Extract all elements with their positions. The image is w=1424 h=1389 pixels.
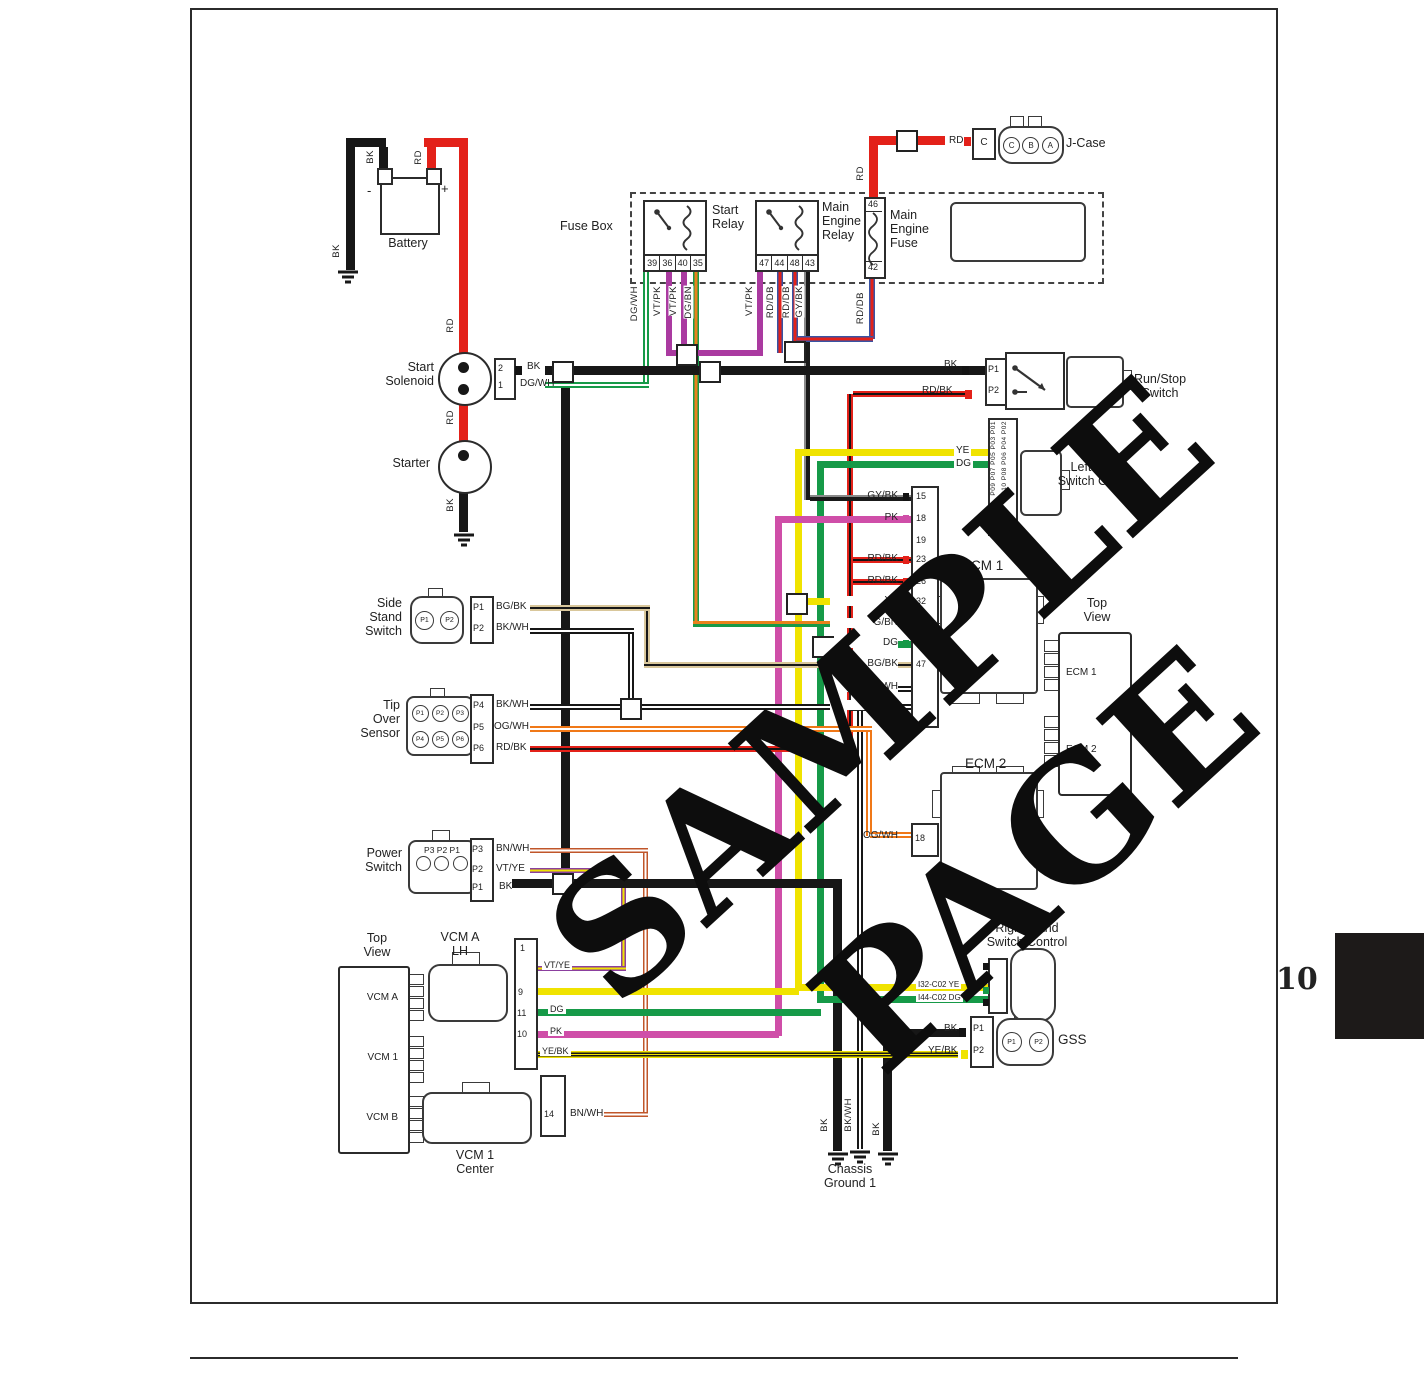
vcm-top-view-1: VCM 1 bbox=[346, 1053, 398, 1063]
tip-over-c3: P3 bbox=[452, 705, 469, 722]
starter-bk-label: BK bbox=[446, 498, 456, 512]
fuse-box-connector bbox=[950, 202, 1086, 262]
vcm-tab bbox=[408, 998, 424, 1009]
solenoid-rd-label: RD bbox=[446, 410, 456, 425]
battery-rd-mid-label: RD bbox=[446, 318, 456, 333]
fuse-divider bbox=[864, 211, 882, 212]
vtpk3-vlabel: VT/PK bbox=[745, 286, 755, 316]
wire-ogwh-p5 bbox=[530, 726, 872, 732]
vcm-tab bbox=[408, 1036, 424, 1047]
wire-starter-bk bbox=[459, 490, 468, 532]
battery-pos-terminal bbox=[426, 168, 442, 185]
vtpk1-vlabel: VT/PK bbox=[653, 286, 663, 316]
switch-icon bbox=[1007, 354, 1059, 404]
start-solenoid-body bbox=[438, 352, 492, 406]
main-engine-relay-body bbox=[755, 200, 819, 258]
vcm-a-connector bbox=[428, 964, 508, 1022]
wire-bnwh-vcm14 bbox=[604, 1112, 648, 1117]
wire-battery-bk bbox=[346, 138, 386, 147]
pin-bullet bbox=[965, 390, 972, 399]
wire-main-bk-bus bbox=[545, 366, 985, 375]
side-stand-c1: P1 bbox=[415, 611, 434, 630]
vcm1-pinbox bbox=[540, 1075, 566, 1137]
solenoid-pin1-wire: DG/WH bbox=[520, 379, 554, 389]
wire-bgbk-vertical bbox=[644, 605, 650, 665]
ground-icon bbox=[452, 533, 476, 549]
side-stand-label: SideStandSwitch bbox=[340, 596, 402, 638]
dgwh-vlabel: DG/WH bbox=[630, 286, 640, 321]
wire-solenoid-starter-rd bbox=[459, 402, 468, 442]
side-stand-connector: P1 P2 bbox=[410, 596, 464, 644]
ecm1-pin23: 23 bbox=[916, 555, 926, 564]
pin-bullet bbox=[983, 987, 989, 994]
side-stand-p1-wire: BG/BK bbox=[496, 602, 527, 612]
runstop-connector bbox=[1066, 356, 1124, 408]
wire-bnwh-vertical bbox=[643, 848, 648, 1116]
power-switch-p3: P3 bbox=[472, 845, 483, 854]
vcm-tab bbox=[408, 1010, 424, 1021]
power-switch-circle bbox=[434, 856, 449, 871]
junction bbox=[552, 361, 574, 383]
vcm1-bnwh-label: BN/WH bbox=[570, 1109, 603, 1119]
ground-icon bbox=[336, 270, 360, 286]
gss-label: GSS bbox=[1058, 1032, 1087, 1047]
runstop-p2: P2 bbox=[988, 386, 999, 395]
lh-pins-col2: P10 P08 P06 P04 P02 bbox=[1002, 421, 1009, 496]
wire-vtye-p2 bbox=[530, 868, 626, 873]
tip-over-p5: P5 bbox=[473, 723, 484, 732]
battery-rd-label: RD bbox=[414, 150, 424, 165]
junction bbox=[784, 341, 806, 363]
ecm2-pin18: 18 bbox=[915, 834, 925, 843]
wire-battery-rd bbox=[424, 138, 468, 147]
ecm1-pin47: 47 bbox=[916, 660, 926, 669]
wire-rddb-fuse bbox=[869, 277, 875, 339]
wire-main-bk-bus-vertical bbox=[561, 372, 570, 880]
pin-bullet bbox=[903, 556, 909, 564]
tip-over-p6-wire: RD/BK bbox=[496, 743, 527, 753]
jcase-rd-label: RD bbox=[949, 136, 963, 146]
junction bbox=[552, 873, 574, 895]
battery-label: Battery bbox=[378, 236, 438, 250]
pin-bullet bbox=[964, 137, 971, 146]
chapter-tab bbox=[1335, 933, 1424, 1039]
dgbn-vlabel: DG/BN bbox=[684, 286, 694, 319]
ecm1-pin26-wire: RD/BK bbox=[830, 576, 898, 586]
vcm-top-view-a: VCM A bbox=[346, 993, 398, 1003]
ecm1-connector bbox=[940, 578, 1038, 694]
start-relay-pins: 39364035 bbox=[643, 254, 707, 272]
pin-bullet bbox=[962, 366, 969, 375]
battery-neg-terminal bbox=[377, 168, 393, 185]
side-stand-p1: P1 bbox=[473, 603, 484, 612]
starter-body bbox=[438, 440, 492, 494]
lh-dg-label: DG bbox=[954, 459, 973, 469]
pin-bullet bbox=[983, 963, 989, 970]
ecm2-connector bbox=[940, 772, 1038, 890]
vcm-a-pin10: 10 bbox=[517, 1030, 527, 1039]
power-switch-p1: P1 bbox=[472, 883, 483, 892]
wire-rdbk-p6 bbox=[530, 746, 853, 752]
lh-pins-col1: P09 P07 P05 P03 P01 bbox=[991, 421, 998, 496]
fuse-pin-top: 46 bbox=[865, 200, 881, 209]
wire-bgbk-row1 bbox=[530, 605, 650, 611]
vcm-tab bbox=[408, 1060, 424, 1071]
junction bbox=[620, 698, 642, 720]
power-switch-p2: P2 bbox=[472, 865, 483, 874]
ecm1-pin18: 18 bbox=[916, 514, 926, 523]
gybk-vlabel: GY/BK bbox=[795, 286, 805, 318]
tip-over-c2: P2 bbox=[432, 705, 449, 722]
gss-bk-label: BK bbox=[944, 1024, 957, 1034]
ecm-top-view-body bbox=[1058, 632, 1132, 796]
lh-ye-label: YE bbox=[954, 446, 971, 456]
wire-ogwh-vertical bbox=[866, 730, 872, 836]
pin-bullet bbox=[903, 578, 909, 586]
vcm-a-yebk-label: YE/BK bbox=[540, 1047, 571, 1056]
ecm-top-view-label: TopView bbox=[1072, 596, 1122, 624]
tip-over-p4: P4 bbox=[473, 701, 484, 710]
power-switch-p2-wire: VT/YE bbox=[496, 864, 525, 874]
vcm-a-pk-label: PK bbox=[548, 1027, 564, 1036]
tip-over-c4: P4 bbox=[412, 731, 429, 748]
ecm1-dg-wire: DG bbox=[830, 638, 898, 648]
ecm1-gbn-wire: G/BN bbox=[830, 618, 898, 628]
jcase-pin-a: A bbox=[1042, 137, 1059, 154]
battery-minus: - bbox=[367, 184, 371, 197]
ecm1-pin18-wire: PK bbox=[830, 513, 898, 523]
power-switch-circle bbox=[453, 856, 468, 871]
tip-over-c5: P5 bbox=[432, 731, 449, 748]
jcase-label: J-Case bbox=[1066, 136, 1106, 150]
ecm-top-view-ecm2: ECM 2 bbox=[1066, 745, 1097, 755]
power-switch-p3-wire: BN/WH bbox=[496, 844, 529, 854]
jcase-rd-vlabel: RD bbox=[856, 166, 866, 181]
wire-bkwh-ground bbox=[857, 708, 863, 1149]
rddb1-vlabel: RD/DB bbox=[766, 286, 776, 318]
battery-bk-side-label: BK bbox=[332, 244, 342, 258]
wire-battery-bk-down bbox=[346, 138, 355, 270]
solenoid-pin2: 2 bbox=[498, 364, 503, 373]
main-engine-fuse-label: MainEngineFuse bbox=[890, 208, 929, 250]
wire-bnwh-p3 bbox=[530, 848, 648, 853]
footer-rule bbox=[190, 1357, 1238, 1359]
lh-control-label: Left-HandSwitch Control bbox=[1048, 460, 1148, 488]
jcase-pin-b: B bbox=[1022, 137, 1039, 154]
rddb2-vlabel: RD/DB bbox=[782, 286, 792, 318]
jcase-pin-c: C bbox=[1003, 137, 1020, 154]
chassis-ground-label: ChassisGround 1 bbox=[800, 1162, 900, 1190]
wire-battery-rd-down bbox=[459, 138, 468, 356]
vcm1-connector bbox=[422, 1092, 532, 1144]
tip-over-p5-wire: OG/WH bbox=[494, 722, 529, 732]
chassis-bk1-label: BK bbox=[820, 1118, 830, 1132]
jcase-c-box: C bbox=[972, 128, 996, 160]
pin-bullet bbox=[983, 999, 989, 1006]
wire-dg-vertical bbox=[817, 461, 824, 1003]
runstop-rdbk-label: RD/BK bbox=[922, 386, 953, 396]
pin-bullet bbox=[903, 640, 909, 648]
wire-jcase-rd-v bbox=[869, 136, 878, 198]
wire-bk-ground1 bbox=[833, 883, 842, 1151]
pin-bullet bbox=[961, 1050, 968, 1059]
start-solenoid-label: StartSolenoid bbox=[352, 360, 434, 388]
rh-dg-label: I44-C02 DG bbox=[916, 994, 963, 1002]
tip-over-label: TipOverSensor bbox=[338, 698, 400, 740]
wire-ye-vertical bbox=[795, 449, 802, 991]
vcm-a-dg-label: DG bbox=[548, 1005, 566, 1014]
vcm-tab bbox=[408, 974, 424, 985]
pin-bullet bbox=[903, 515, 909, 523]
wire-ye-vcm bbox=[534, 988, 799, 995]
junction bbox=[676, 344, 698, 366]
start-relay-label: StartRelay bbox=[712, 203, 744, 231]
wire-bkwh-vertical1 bbox=[628, 628, 634, 706]
ecm1-pin19: 19 bbox=[916, 536, 926, 545]
vcm-a-pin1: 1 bbox=[520, 944, 525, 953]
main-engine-relay-label: MainEngineRelay bbox=[822, 200, 861, 242]
wire-yebk-vcm bbox=[534, 1051, 958, 1058]
chassis-bk2-label: BK bbox=[872, 1122, 882, 1136]
junction bbox=[896, 130, 918, 152]
tip-over-c6: P6 bbox=[452, 731, 469, 748]
pin-bullet bbox=[903, 493, 909, 501]
ecm1-pin32-wire: YE bbox=[830, 596, 898, 606]
ecm2-label: ECM 2 bbox=[965, 756, 1006, 771]
gss-yebk-label: YE/BK bbox=[928, 1046, 957, 1056]
tip-over-connector: P1 P2 P3 P4 P5 P6 bbox=[406, 696, 474, 756]
side-stand-c2: P2 bbox=[440, 611, 459, 630]
pin-bullet bbox=[959, 1028, 966, 1037]
vcm-a-pin9: 9 bbox=[518, 988, 523, 997]
vcm-tab bbox=[408, 1072, 424, 1083]
wire-pk-vertical bbox=[775, 516, 782, 1036]
starter-label: Starter bbox=[360, 456, 430, 470]
runstop-switch-body bbox=[1005, 352, 1065, 410]
wiring-diagram-page: 10 BK RD BK RD - + Battery StartSolenoid… bbox=[0, 0, 1424, 1389]
gss-connector: P1 P2 bbox=[996, 1018, 1054, 1066]
gss-p2: P2 bbox=[973, 1046, 984, 1055]
wire-bkwh-row1 bbox=[530, 628, 634, 634]
vcm-tab bbox=[408, 1048, 424, 1059]
wire-vtpk3 bbox=[757, 268, 763, 356]
ecm1-pin23-wire: RD/BK bbox=[830, 554, 898, 564]
side-stand-p2-wire: BK/WH bbox=[496, 623, 529, 633]
ecm1-bkwh1-wire: BK/WH bbox=[830, 682, 898, 692]
pin-bullet bbox=[903, 620, 909, 628]
vtpk2-vlabel: VT/PK bbox=[669, 286, 679, 316]
gss-c2: P2 bbox=[1029, 1032, 1049, 1052]
battery-bk-label: BK bbox=[366, 150, 376, 164]
rh-connector bbox=[1010, 948, 1056, 1022]
vcm-a-label: VCM ALH bbox=[432, 930, 488, 958]
wire-dg-vcm bbox=[534, 1009, 821, 1016]
pin-bullet bbox=[515, 366, 522, 375]
starter-dot bbox=[458, 450, 469, 461]
ecm1-bkwh2-wire: BK/WH bbox=[830, 700, 898, 710]
pin-bullet bbox=[903, 598, 909, 606]
battery-plus: + bbox=[441, 182, 449, 195]
fuse-box-label: Fuse Box bbox=[560, 219, 613, 233]
ecm1-pin47-wire: BG/BK bbox=[830, 659, 898, 669]
vcm-a-pinbox bbox=[514, 938, 538, 1070]
wire-gybk bbox=[804, 268, 810, 500]
tip-over-p6: P6 bbox=[473, 744, 484, 753]
wire-dgbn bbox=[693, 268, 699, 626]
power-switch-connector: P3 P2 P1 bbox=[408, 840, 476, 894]
vcm-a-pin11: 11 bbox=[517, 1009, 526, 1018]
ecm2-ogwh-label: OG/WH bbox=[830, 831, 898, 841]
vcm1-label: VCM 1Center bbox=[445, 1148, 505, 1176]
pin-bullet bbox=[983, 975, 989, 982]
runstop-label: Run/StopSwitch bbox=[1122, 372, 1198, 400]
power-switch-label: PowerSwitch bbox=[330, 846, 402, 874]
junction bbox=[786, 593, 808, 615]
chassis-bkwh-label: BK/WH bbox=[844, 1098, 854, 1132]
wire-dg-rh bbox=[824, 996, 988, 1003]
vcm-tab bbox=[408, 986, 424, 997]
solenoid-dot-top bbox=[458, 362, 469, 373]
wire-rddb-loop bbox=[797, 336, 873, 342]
page-number: 10 bbox=[1276, 962, 1328, 997]
rddb-fuse-vlabel: RD/DB bbox=[856, 292, 866, 324]
ecm1-pin32: 32 bbox=[916, 597, 926, 606]
junction bbox=[699, 361, 721, 383]
ecm1-label: ECM 1 bbox=[962, 558, 1003, 573]
start-relay-body bbox=[643, 200, 707, 258]
fuse-pin-bottom: 42 bbox=[865, 263, 881, 272]
side-stand-p2: P2 bbox=[473, 624, 484, 633]
runstop-p1: P1 bbox=[988, 365, 999, 374]
vcm-a-vtye-label: VT/YE bbox=[542, 961, 572, 970]
runstop-bk-label: BK bbox=[944, 360, 957, 370]
wire-bkwh-p4 bbox=[530, 704, 858, 710]
battery-body bbox=[380, 177, 440, 235]
ecm1-pin15: 15 bbox=[916, 492, 926, 501]
gss-c1: P1 bbox=[1002, 1032, 1022, 1052]
ecm1-pin26: 26 bbox=[916, 577, 926, 586]
wire-pk-vcm bbox=[534, 1031, 779, 1038]
vcm-top-view-label: TopView bbox=[352, 931, 402, 959]
ecm-top-view-ecm1: ECM 1 bbox=[1066, 668, 1097, 678]
relay-icon bbox=[645, 202, 701, 252]
jcase-connector: C B A bbox=[998, 126, 1064, 164]
main-engine-relay-pins: 47444843 bbox=[755, 254, 819, 272]
tip-over-p4-wire: BK/WH bbox=[496, 700, 529, 710]
power-switch-conn-label: P3 P2 P1 bbox=[410, 845, 474, 855]
power-switch-circle bbox=[416, 856, 431, 871]
solenoid-pin2-wire: BK bbox=[527, 362, 540, 372]
rh-pinstrip bbox=[988, 958, 1008, 1014]
tip-over-c1: P1 bbox=[412, 705, 429, 722]
solenoid-dot-bottom bbox=[458, 384, 469, 395]
rh-control-label: Right-HandSwitch Control bbox=[972, 921, 1082, 949]
solenoid-pin1: 1 bbox=[498, 381, 503, 390]
vcm1-pin14: 14 bbox=[544, 1110, 554, 1119]
gss-p1: P1 bbox=[973, 1024, 984, 1033]
relay-icon bbox=[757, 202, 813, 252]
rh-ye-label: I32-C02 YE bbox=[916, 981, 961, 989]
ecm1-pin15-wire: GY/BK bbox=[830, 491, 898, 501]
power-switch-p1-wire: BK bbox=[499, 882, 512, 892]
vcm-top-view-b: VCM B bbox=[346, 1113, 398, 1123]
